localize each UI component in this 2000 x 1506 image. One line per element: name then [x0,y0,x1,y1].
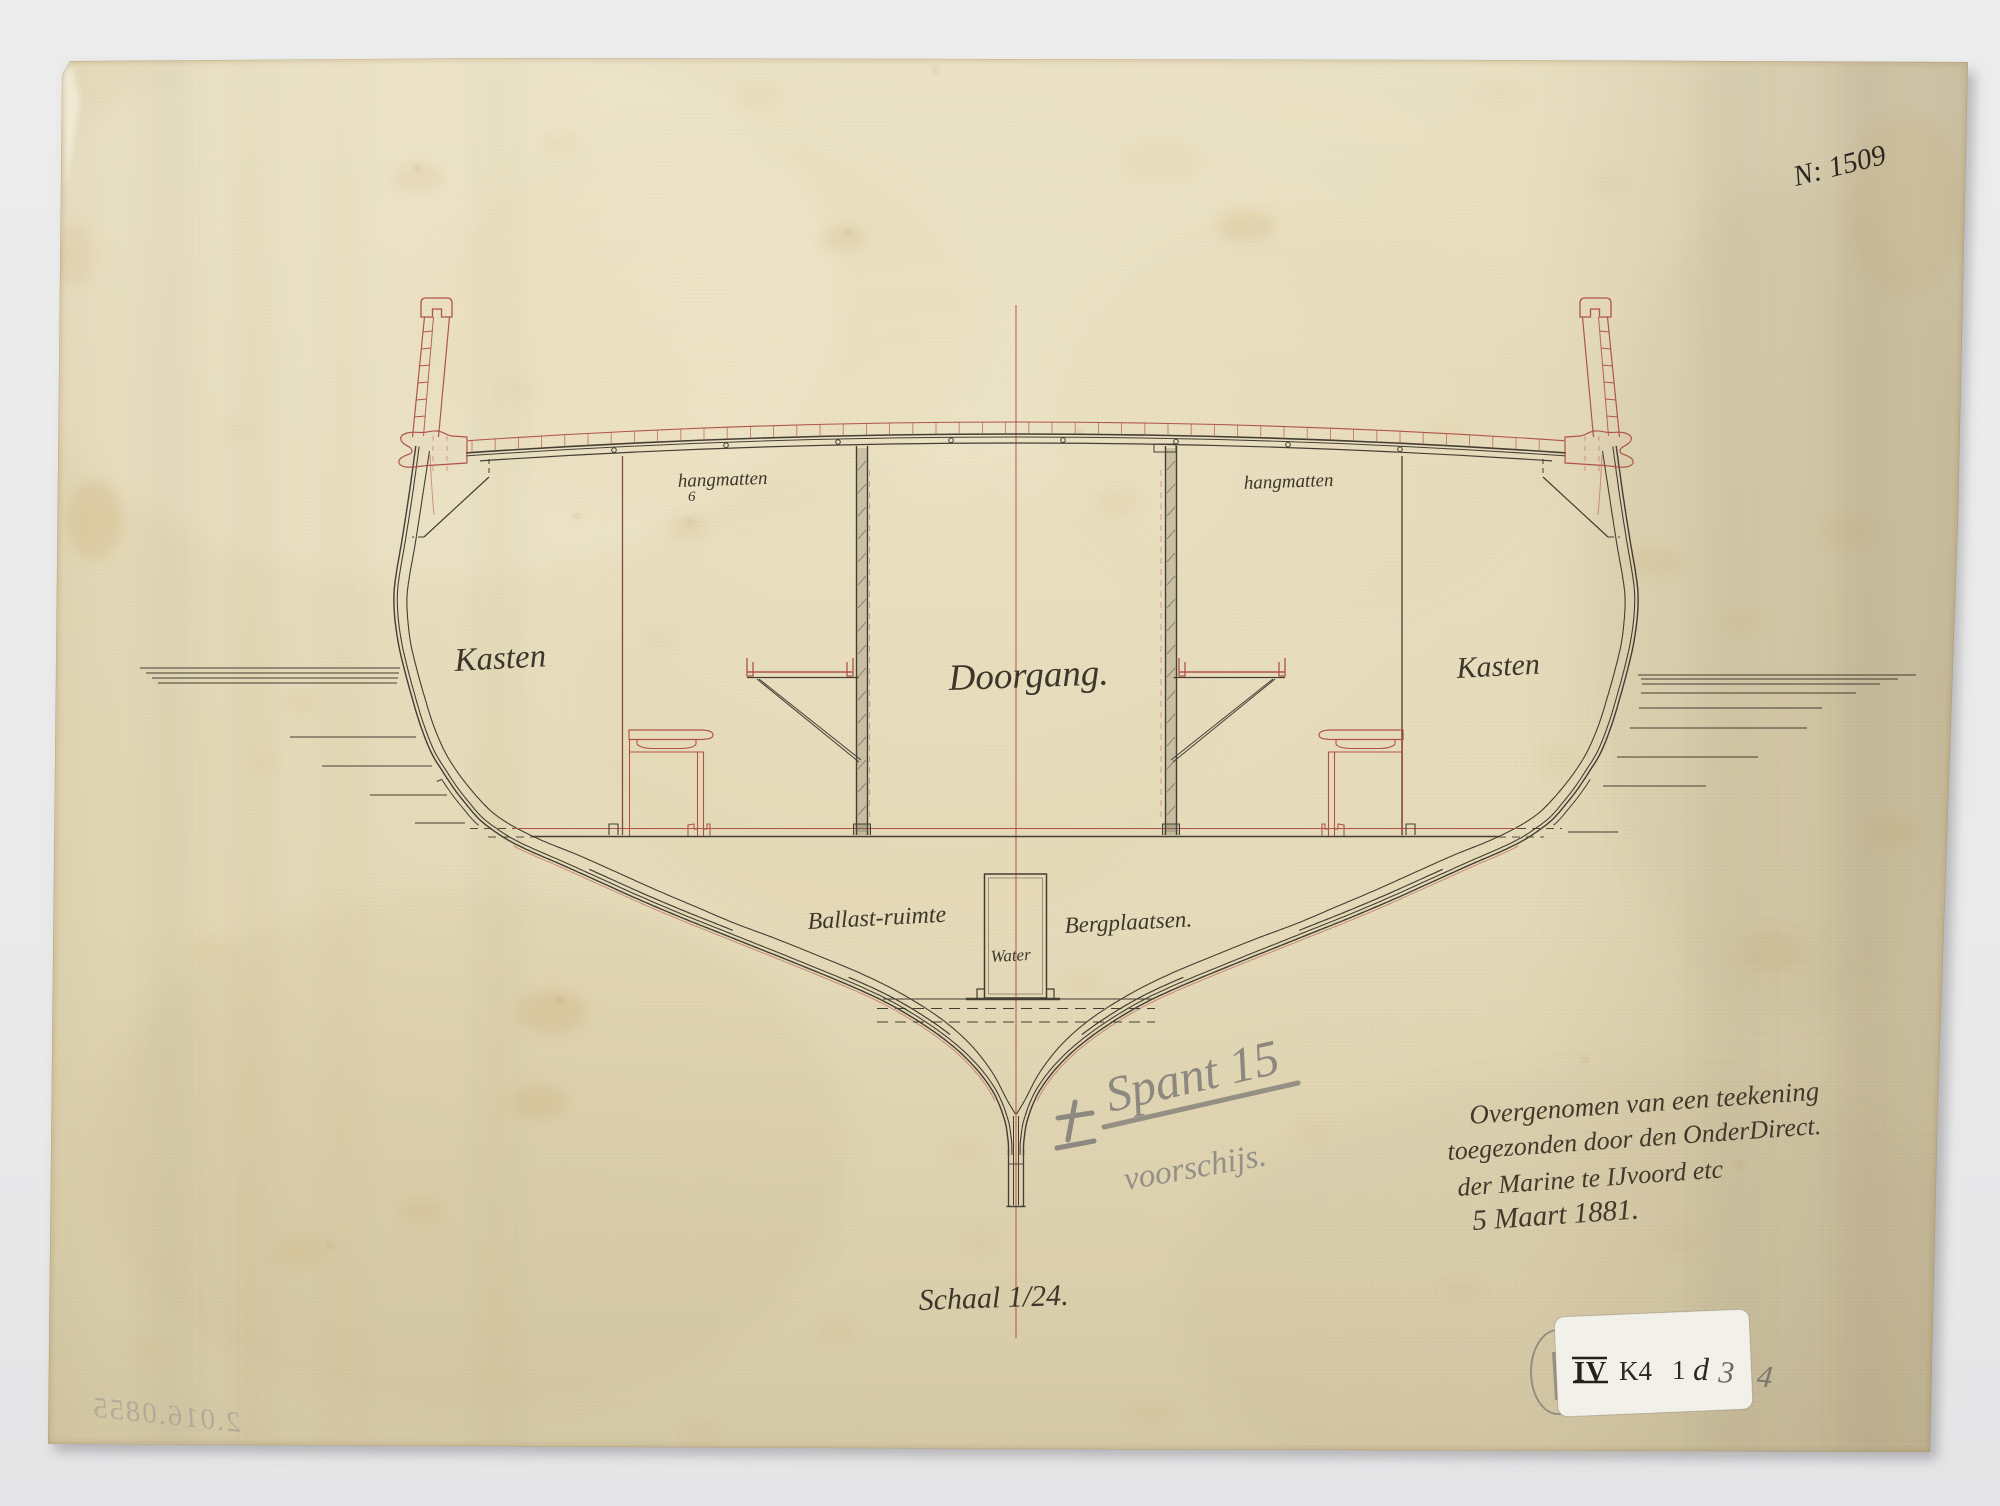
svg-text:d: d [1693,1351,1710,1387]
svg-text:K4: K4 [1619,1356,1652,1386]
svg-text:6: 6 [688,489,696,505]
svg-text:hangmatten: hangmatten [1243,470,1333,494]
svg-text:Kasten: Kasten [453,638,547,679]
svg-text:3: 3 [1717,1354,1736,1390]
svg-text:Schaal 1/24.: Schaal 1/24. [918,1279,1069,1317]
svg-text:Water: Water [990,945,1031,966]
svg-text:Doorgang.: Doorgang. [947,652,1109,699]
svg-text:IV: IV [1574,1357,1607,1388]
svg-text:1: 1 [1672,1355,1686,1385]
svg-text:Kasten: Kasten [1455,648,1541,685]
